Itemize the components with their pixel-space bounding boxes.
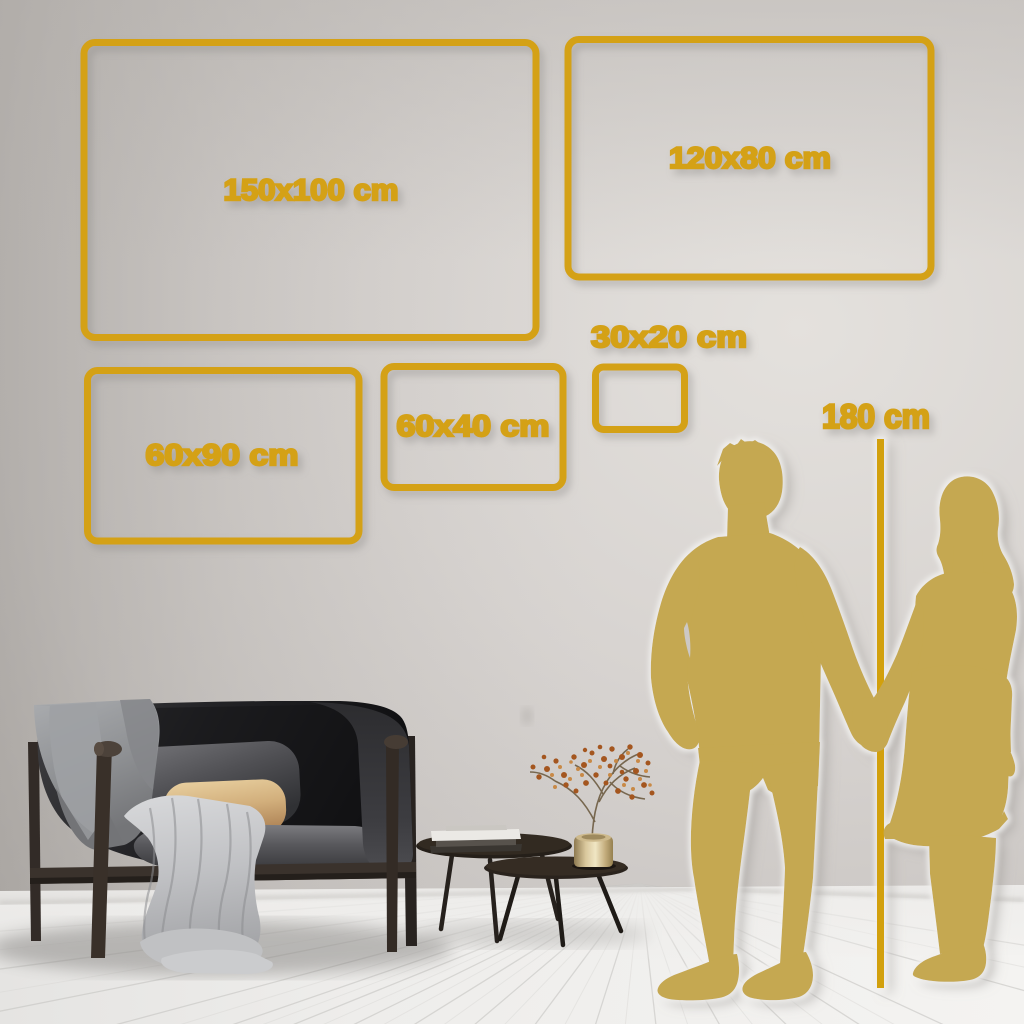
svg-text:60x90 cm: 60x90 cm (146, 439, 299, 472)
svg-text:120x80 cm: 120x80 cm (669, 142, 831, 175)
svg-text:30x20 cm: 30x20 cm (591, 321, 747, 354)
svg-text:150x100 cm: 150x100 cm (224, 174, 399, 207)
svg-text:60x40 cm: 60x40 cm (397, 410, 550, 443)
svg-text:180 cm: 180 cm (822, 398, 930, 436)
